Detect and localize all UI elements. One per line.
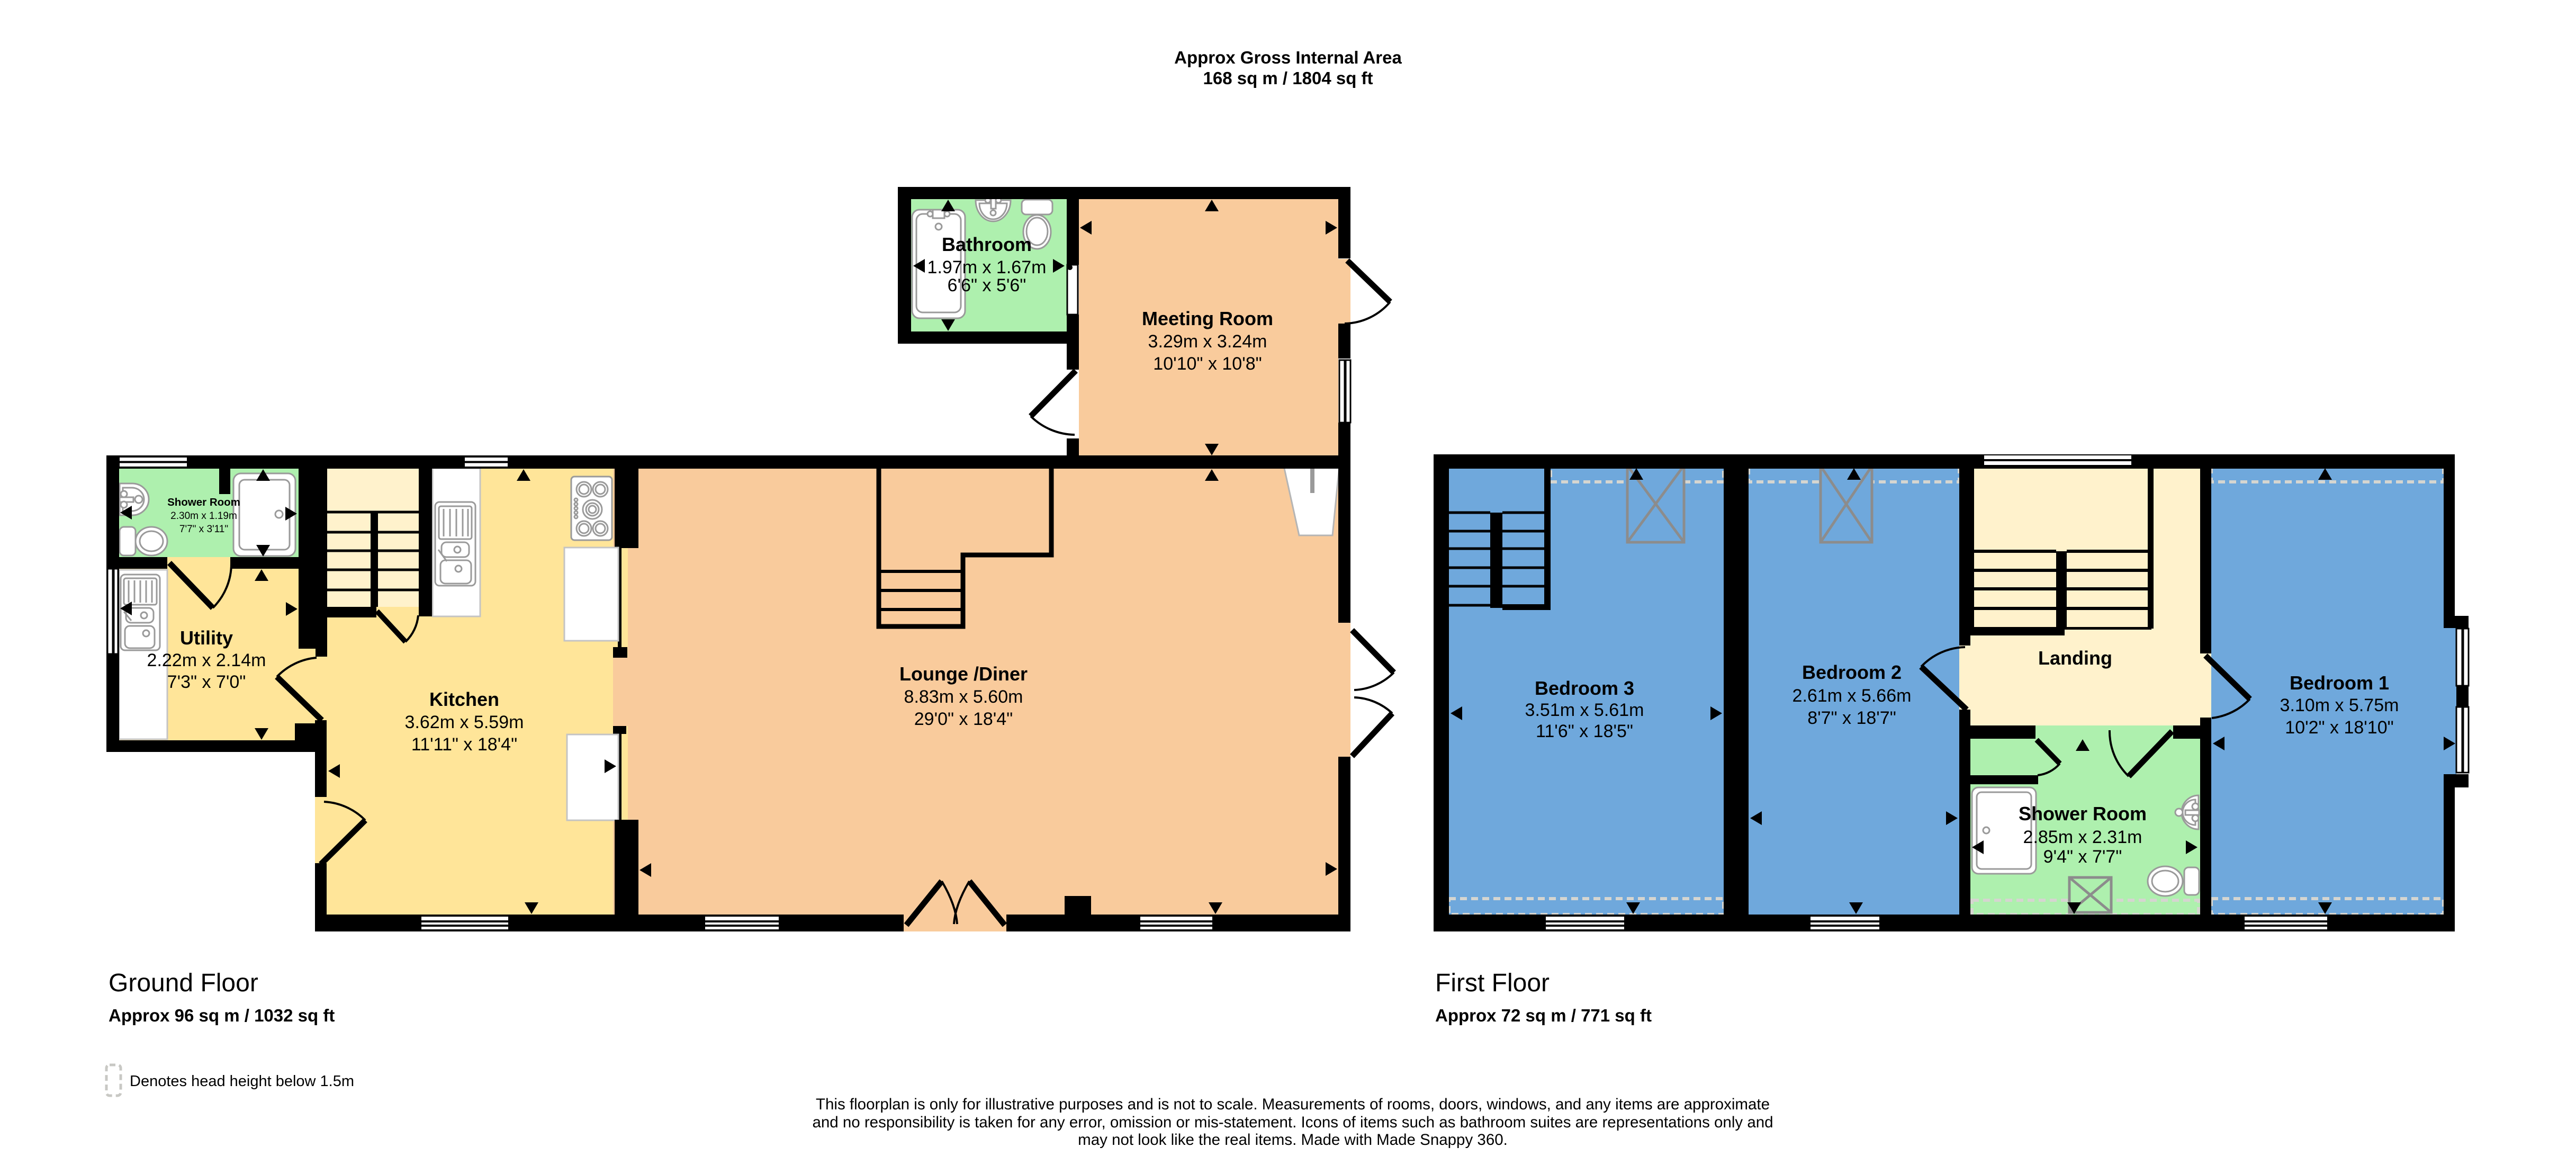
svg-text:8'7" x 18'7": 8'7" x 18'7" xyxy=(1807,708,1896,728)
svg-text:Shower Room: Shower Room xyxy=(167,496,240,508)
svg-text:10'10" x 10'8": 10'10" x 10'8" xyxy=(1153,354,1262,374)
svg-text:Landing: Landing xyxy=(2038,647,2112,669)
svg-text:Bedroom 1: Bedroom 1 xyxy=(2290,672,2389,694)
svg-text:may not look like the real ite: may not look like the real items. Made w… xyxy=(1078,1131,1508,1149)
svg-text:Ground Floor: Ground Floor xyxy=(109,969,258,997)
svg-text:Bathroom: Bathroom xyxy=(942,234,1032,255)
svg-text:2.61m x 5.66m: 2.61m x 5.66m xyxy=(1793,686,1912,706)
svg-text:Approx 72 sq m / 771 sq ft: Approx 72 sq m / 771 sq ft xyxy=(1435,1006,1652,1025)
svg-text:Shower Room: Shower Room xyxy=(2019,803,2147,825)
svg-text:Lounge /Diner: Lounge /Diner xyxy=(899,663,1028,685)
svg-text:Approx Gross Internal Area: Approx Gross Internal Area xyxy=(1174,48,1402,67)
svg-text:First Floor: First Floor xyxy=(1435,969,1550,997)
svg-text:Bedroom 2: Bedroom 2 xyxy=(1802,661,1902,683)
svg-text:3.10m x 5.75m: 3.10m x 5.75m xyxy=(2280,695,2399,715)
svg-text:Approx 96 sq m / 1032 sq ft: Approx 96 sq m / 1032 sq ft xyxy=(109,1006,335,1025)
svg-text:8.83m x 5.60m: 8.83m x 5.60m xyxy=(904,687,1023,707)
svg-text:29'0" x 18'4": 29'0" x 18'4" xyxy=(914,709,1013,729)
svg-text:Meeting Room: Meeting Room xyxy=(1142,308,1273,329)
svg-text:11'11" x 18'4": 11'11" x 18'4" xyxy=(411,734,517,755)
svg-text:Utility: Utility xyxy=(180,627,233,649)
svg-text:9'4" x 7'7": 9'4" x 7'7" xyxy=(2043,847,2122,867)
svg-text:2.30m x 1.19m: 2.30m x 1.19m xyxy=(170,510,237,522)
svg-text:168 sq m / 1804 sq ft: 168 sq m / 1804 sq ft xyxy=(1203,68,1373,88)
svg-text:2.85m x 2.31m: 2.85m x 2.31m xyxy=(2023,827,2142,847)
svg-text:3.29m x 3.24m: 3.29m x 3.24m xyxy=(1148,331,1267,352)
svg-text:This floorplan is only for ill: This floorplan is only for illustrative … xyxy=(816,1096,1770,1113)
svg-text:1.97m x 1.67m: 1.97m x 1.67m xyxy=(927,257,1047,277)
svg-text:11'6" x 18'5": 11'6" x 18'5" xyxy=(1536,721,1633,741)
svg-text:7'7" x 3'11": 7'7" x 3'11" xyxy=(179,524,228,535)
svg-text:10'2" x 18'10": 10'2" x 18'10" xyxy=(2285,718,2393,738)
svg-text:2.22m x 2.14m: 2.22m x 2.14m xyxy=(147,650,266,670)
svg-text:6'6" x 5'6": 6'6" x 5'6" xyxy=(948,275,1026,295)
svg-text:Kitchen: Kitchen xyxy=(429,688,499,710)
svg-text:3.62m x 5.59m: 3.62m x 5.59m xyxy=(405,712,524,732)
svg-text:7'3" x 7'0": 7'3" x 7'0" xyxy=(167,672,246,692)
svg-text:Bedroom 3: Bedroom 3 xyxy=(1535,677,1634,699)
svg-text:Denotes head height below 1.5m: Denotes head height below 1.5m xyxy=(130,1073,354,1090)
svg-text:and no responsibility is taken: and no responsibility is taken for any e… xyxy=(812,1114,1773,1131)
svg-text:3.51m x 5.61m: 3.51m x 5.61m xyxy=(1525,700,1644,720)
